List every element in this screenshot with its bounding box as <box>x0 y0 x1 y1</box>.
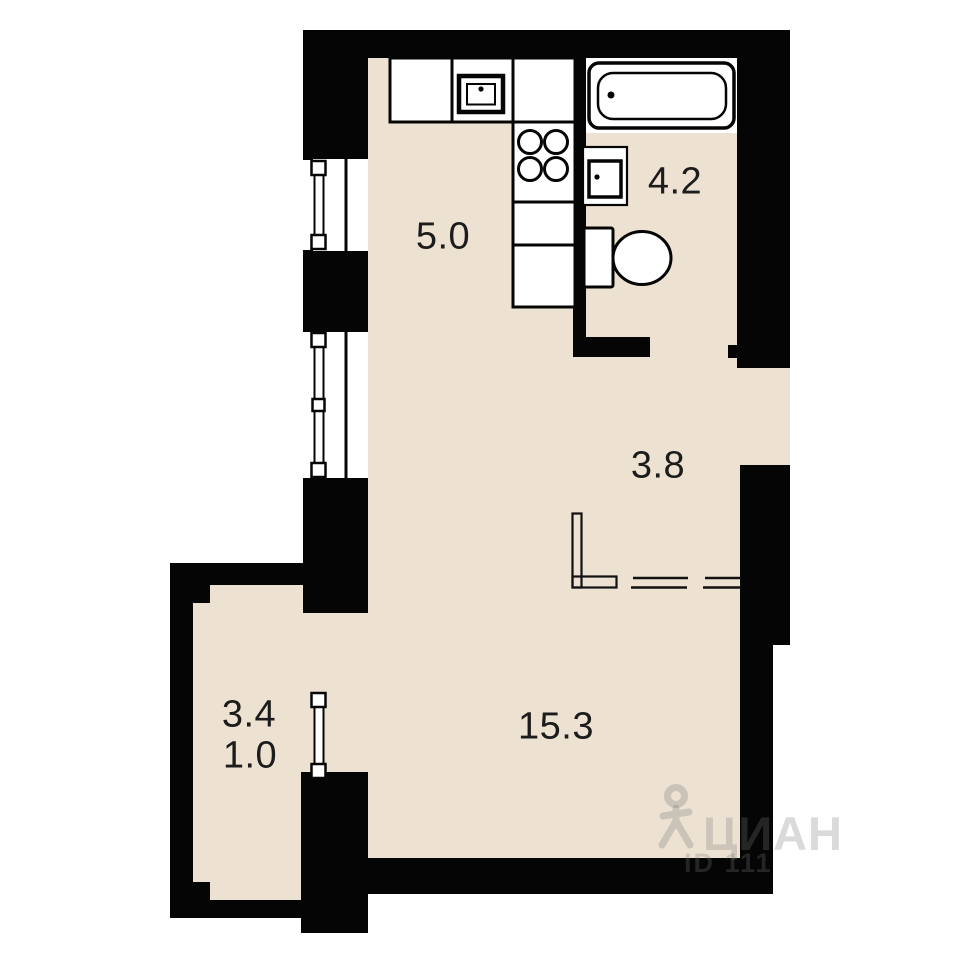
window-sill-line <box>345 159 348 251</box>
window-sill-line <box>345 332 348 478</box>
kitchen-sink-icon <box>459 76 503 112</box>
sink-outer <box>459 76 503 112</box>
wall-balcony-step-top <box>193 585 210 603</box>
wall-left-lower <box>303 478 368 613</box>
counter-segment <box>513 245 575 307</box>
floor-plan: 5.0 4.2 3.8 15.3 3.4 1.0 ЦИАН ID 111 <box>0 0 960 960</box>
watermark-listing-id: ID 111 <box>684 848 773 879</box>
room-label-living-room: 15.3 <box>518 706 594 749</box>
wall-left-upper <box>303 58 368 160</box>
window-frame-cap <box>312 161 326 175</box>
bath-sink-drain <box>594 174 599 179</box>
window-frame-cap <box>312 764 326 778</box>
wall-doorjamb-notch <box>728 345 740 358</box>
toilet-bowl <box>613 232 671 285</box>
wall-right-upper <box>737 30 790 368</box>
bath-sink-inner <box>589 161 621 197</box>
window-frame-mullion <box>313 399 325 411</box>
counter-segment <box>390 58 452 122</box>
room-label-bathroom: 4.2 <box>648 161 702 204</box>
wall-balcony-step-bottom <box>193 882 210 900</box>
wall-balcony-left <box>170 563 193 918</box>
wall-balcony-partition <box>301 772 368 933</box>
toilet-tank <box>584 228 613 287</box>
room-label-balcony-reduced: 1.0 <box>223 735 277 778</box>
room-label-balcony: 3.4 <box>222 694 276 737</box>
window-icon-upper <box>302 159 368 251</box>
bathtub-drain <box>608 92 615 99</box>
window-frame-cap <box>312 235 326 249</box>
window-frame-cap <box>312 463 326 477</box>
room-label-hallway: 3.8 <box>631 445 685 488</box>
room-label-kitchen: 5.0 <box>416 216 470 259</box>
wall-bathroom-bottom <box>573 337 650 357</box>
balcony-window-icon <box>312 693 326 778</box>
wall-top <box>303 30 790 58</box>
window-frame-cap <box>312 693 326 707</box>
wall-left-between-windows <box>303 250 368 332</box>
wall-balcony-bottom <box>170 900 303 918</box>
bathtub-icon <box>589 63 734 128</box>
window-frame-cap <box>312 333 326 347</box>
sink-drain <box>478 86 483 91</box>
bathroom-sink-icon <box>583 147 627 205</box>
counter-segment <box>513 202 575 245</box>
window-icon-lower <box>302 332 368 478</box>
corner-counter <box>513 58 575 122</box>
floor-entry-nook <box>737 368 790 465</box>
toilet-icon <box>584 228 671 287</box>
wall-right-middle <box>740 465 790 645</box>
window-reveal <box>302 167 313 243</box>
